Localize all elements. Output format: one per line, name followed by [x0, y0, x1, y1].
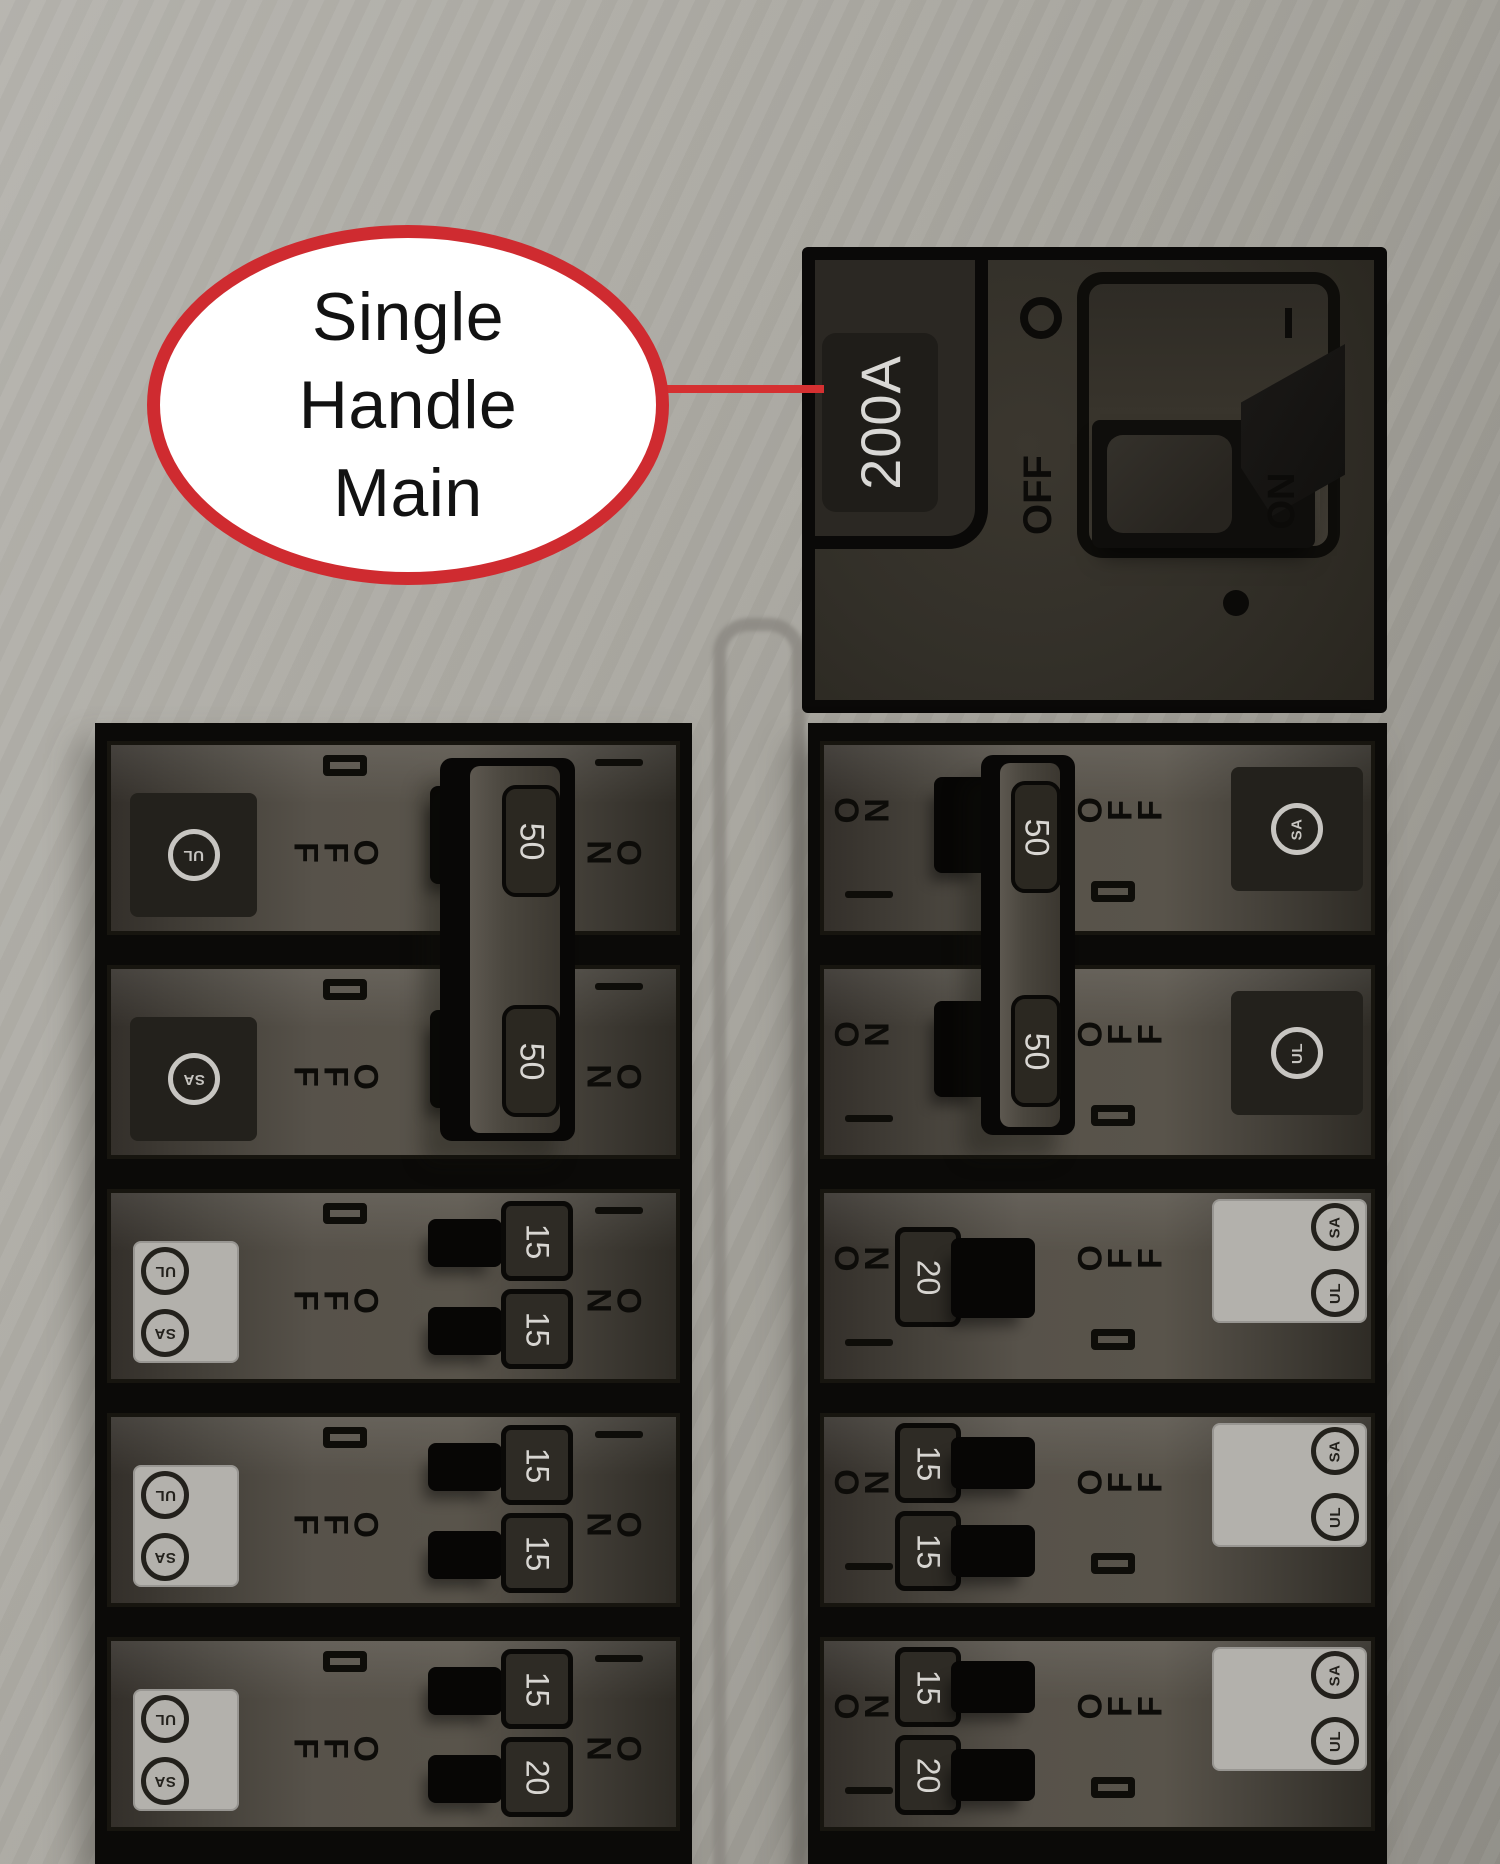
tandem-handle-tip[interactable] [951, 1525, 1035, 1577]
certification-logo-ul-icon: UL [141, 1471, 189, 1519]
breaker-row-tandem: SAULONOFF1520 [822, 1639, 1373, 1829]
off-label: OFF [1078, 1687, 1164, 1726]
certification-logo-sa-icon: SA [141, 1309, 189, 1357]
callout-line-2: Handle [299, 361, 518, 449]
off-label: OFF [1078, 791, 1164, 830]
label-square-dark: UL [130, 793, 257, 917]
tandem-handle-tip[interactable] [951, 1749, 1035, 1801]
callout-bubble: Single Handle Main [147, 225, 669, 585]
alignment-dash-icon [845, 1339, 893, 1346]
breaker-row-tandem: SAULONOFF1515 [822, 1415, 1373, 1605]
alignment-dash-icon [845, 891, 893, 898]
mount-slot-icon [323, 979, 367, 1000]
tied-amp-label: 50 [1011, 781, 1061, 893]
tandem-handle-stub[interactable] [428, 1755, 502, 1803]
tied-amp-label: 50 [502, 785, 560, 897]
breaker-amp-label[interactable]: 20 [501, 1737, 573, 1817]
certification-logo-ul-icon: UL [1311, 1269, 1359, 1317]
label-square-dark: SA [130, 1017, 257, 1141]
main-breaker: 200A OFF ON [802, 247, 1387, 713]
breaker-amp-label[interactable]: 15 [501, 1513, 573, 1593]
tied-amp-label: 50 [1011, 995, 1061, 1107]
main-handle-face [1107, 435, 1232, 533]
tandem-handle-tip[interactable] [951, 1661, 1035, 1713]
certification-logo-sa-icon: SA [141, 1533, 189, 1581]
on-position-mark-icon [1285, 308, 1292, 338]
conduit-shadow [713, 618, 805, 1864]
label-square-light: SAUL [1212, 1423, 1367, 1547]
mount-slot-icon [1091, 881, 1135, 902]
alignment-dash-icon [595, 1655, 643, 1662]
mount-slot-icon [323, 1651, 367, 1672]
off-label: FFO [292, 1729, 378, 1768]
panel-diagram: Single Handle Main 200A OFF ON ULFFONOSA… [0, 0, 1500, 1864]
alignment-dash-icon [845, 1787, 893, 1794]
indicator-circle-icon [1020, 297, 1062, 339]
pair-handle-stub[interactable] [934, 1001, 988, 1097]
certification-logo-ul-icon: UL [141, 1247, 189, 1295]
off-label: OFF [1078, 1463, 1164, 1502]
mount-slot-icon [1091, 1105, 1135, 1126]
breaker-row-pair-bottom: SAFFONO [109, 967, 678, 1157]
on-label: ON [835, 1463, 891, 1502]
breaker-amp-label[interactable]: 15 [501, 1289, 573, 1369]
mount-slot-icon [1091, 1777, 1135, 1798]
certification-logo-sa-icon: SA [1271, 803, 1323, 855]
callout-line-1: Single [312, 273, 504, 361]
breaker-amp-label[interactable]: 15 [501, 1425, 573, 1505]
tied-double-pole-handle[interactable]: 5050 [981, 755, 1075, 1135]
tandem-handle-tip[interactable] [951, 1437, 1035, 1489]
on-label: NO [585, 1729, 641, 1768]
on-label: NO [585, 1281, 641, 1320]
right-breaker-column: SAONOFFULONOFFSAULONOFF20SAULONOFF1515SA… [808, 723, 1387, 1864]
certification-logo-sa-icon: SA [1311, 1203, 1359, 1251]
mount-slot-icon [1091, 1553, 1135, 1574]
test-dot-icon [1223, 590, 1249, 616]
certification-logo-ul-icon: UL [1311, 1717, 1359, 1765]
on-label: NO [585, 833, 641, 872]
breaker-row-tandem: ULSAFFONO1520 [109, 1639, 678, 1829]
certification-logo-sa-icon: SA [168, 1053, 220, 1105]
on-label: ON [835, 791, 891, 830]
tandem-handle-stub[interactable] [428, 1443, 502, 1491]
tandem-handle-stub[interactable] [428, 1307, 502, 1355]
mount-slot-icon [323, 1427, 367, 1448]
tandem-handle-stub[interactable] [428, 1667, 502, 1715]
tandem-handle-stub[interactable] [428, 1219, 502, 1267]
main-rating-text: 200A [848, 355, 913, 490]
alignment-dash-icon [595, 759, 643, 766]
tied-amp-label: 50 [502, 1005, 560, 1117]
on-label: NO [585, 1505, 641, 1544]
on-label: NO [585, 1057, 641, 1096]
main-off-label: OFF [999, 460, 1077, 530]
breaker-amp-label[interactable]: 15 [501, 1649, 573, 1729]
mount-slot-icon [323, 755, 367, 776]
off-label: OFF [1078, 1239, 1164, 1278]
label-square-dark: UL [1231, 991, 1363, 1115]
on-label: ON [835, 1687, 891, 1726]
callout-line-3: Main [333, 449, 482, 537]
label-square-dark: SA [1231, 767, 1363, 891]
breaker-row-pair-top: ULFFONO [109, 743, 678, 933]
alignment-dash-icon [595, 983, 643, 990]
certification-logo-sa-icon: SA [141, 1757, 189, 1805]
alignment-dash-icon [595, 1431, 643, 1438]
certification-logo-ul-icon: UL [168, 829, 220, 881]
main-on-label: ON [1247, 472, 1317, 530]
breaker-row-tandem: ULSAFFONO1515 [109, 1415, 678, 1605]
certification-logo-ul-icon: UL [141, 1695, 189, 1743]
breaker-row-pair-top: SAONOFF [822, 743, 1373, 933]
left-breaker-column: ULFFONOSAFFONOULSAFFONO1515ULSAFFONO1515… [95, 723, 692, 1864]
breaker-amp-label[interactable]: 15 [501, 1201, 573, 1281]
alignment-dash-icon [845, 1563, 893, 1570]
breaker-row-tandem: ULSAFFONO1515 [109, 1191, 678, 1381]
off-label: FFO [292, 833, 378, 872]
breaker-row-pair-bottom: ULONOFF [822, 967, 1373, 1157]
label-square-light: ULSA [133, 1689, 239, 1811]
label-square-light: ULSA [133, 1465, 239, 1587]
label-square-light: SAUL [1212, 1647, 1367, 1771]
tied-double-pole-handle[interactable]: 5050 [440, 758, 575, 1141]
on-label: ON [835, 1239, 891, 1278]
mount-slot-icon [1091, 1329, 1135, 1350]
certification-logo-ul-icon: UL [1311, 1493, 1359, 1541]
label-square-light: SAUL [1212, 1199, 1367, 1323]
certification-logo-sa-icon: SA [1311, 1651, 1359, 1699]
off-label: FFO [292, 1281, 378, 1320]
off-label: FFO [292, 1505, 378, 1544]
tandem-handle-stub[interactable] [428, 1531, 502, 1579]
certification-logo-sa-icon: SA [1311, 1427, 1359, 1475]
breaker-row-single: SAULONOFF20 [822, 1191, 1373, 1381]
certification-logo-ul-icon: UL [1271, 1027, 1323, 1079]
off-label: FFO [292, 1057, 378, 1096]
alignment-dash-icon [595, 1207, 643, 1214]
label-square-light: ULSA [133, 1241, 239, 1363]
mount-slot-icon [323, 1203, 367, 1224]
alignment-dash-icon [845, 1115, 893, 1122]
main-rating-badge: 200A [822, 333, 938, 512]
single-handle-tip[interactable] [951, 1238, 1035, 1318]
off-label: OFF [1078, 1015, 1164, 1054]
on-label: ON [835, 1015, 891, 1054]
pair-handle-stub[interactable] [934, 777, 988, 873]
